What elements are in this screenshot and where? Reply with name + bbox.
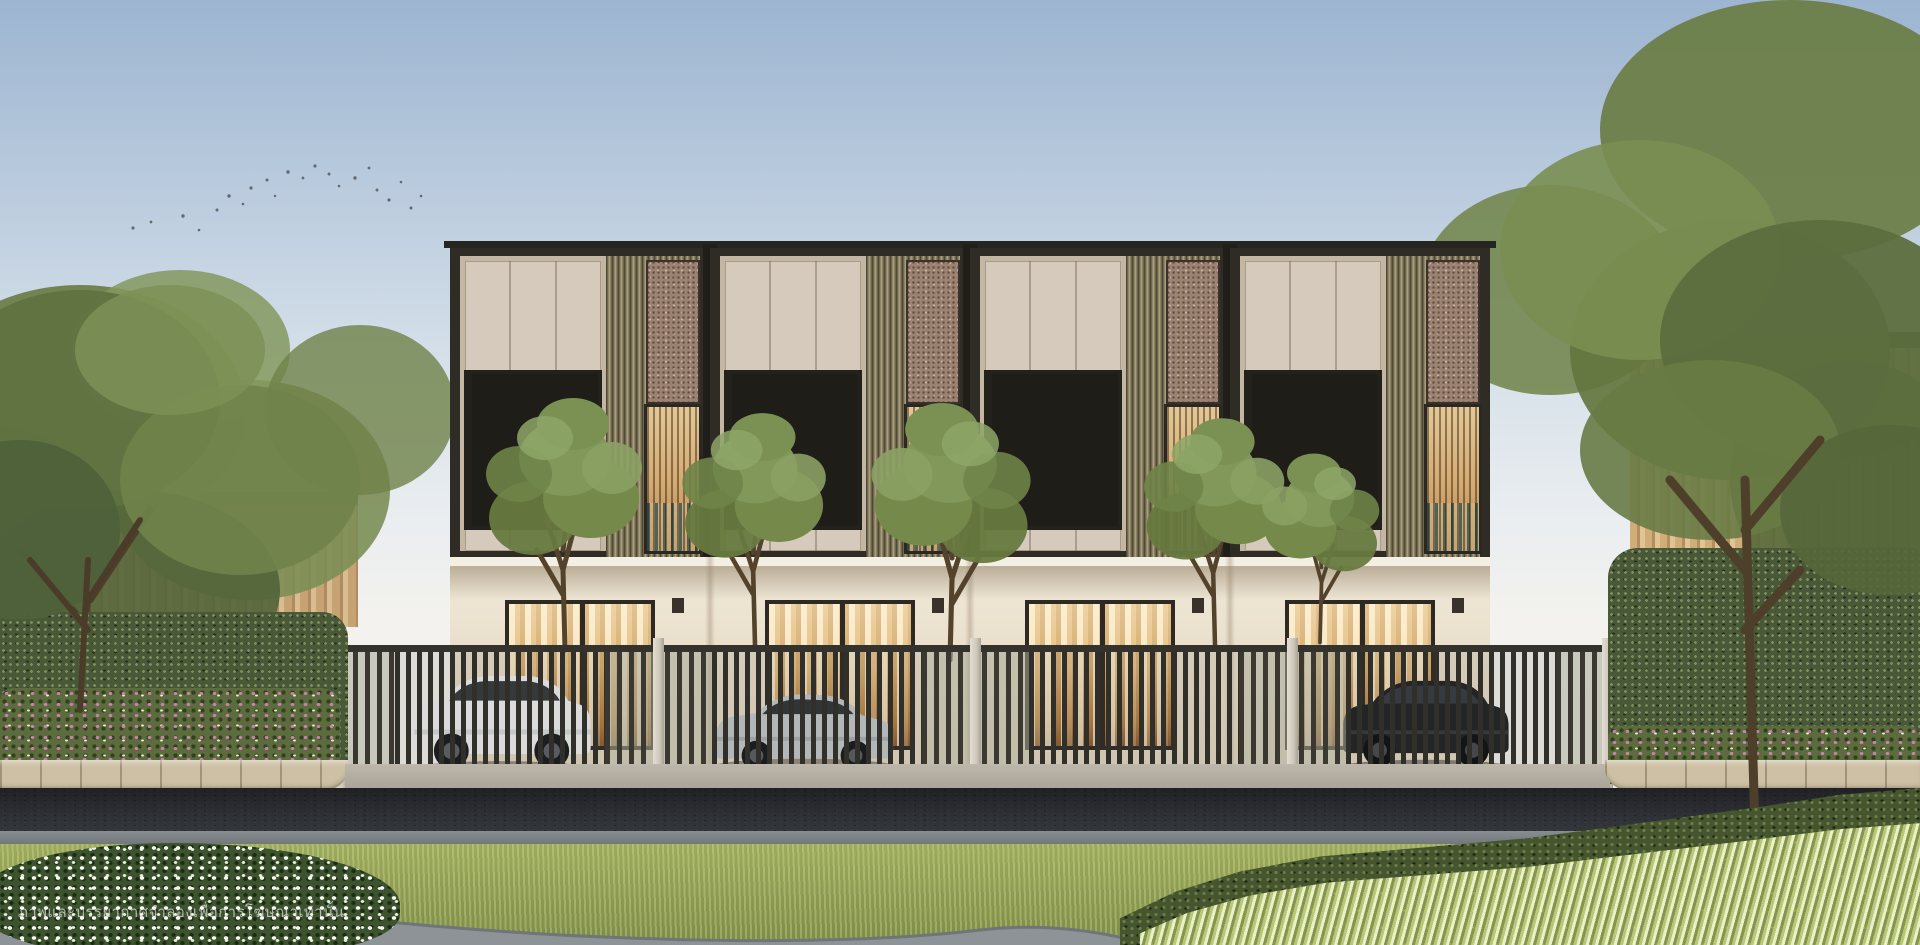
bird-flock — [125, 152, 425, 262]
foreground-tree-right — [1490, 10, 1920, 840]
front-tree-4 — [1215, 420, 1217, 422]
balcony-window-behind-slats — [1424, 404, 1482, 554]
terrazzo-panel — [906, 260, 960, 404]
front-tree-3 — [950, 405, 952, 407]
house-number-plate — [672, 598, 684, 613]
terrazzo-panel — [1166, 260, 1220, 404]
bronze-slat-screen — [1386, 256, 1480, 557]
house-number-plate — [932, 598, 944, 613]
foreground-tree-left — [0, 280, 480, 720]
terrazzo-panel — [646, 260, 700, 404]
house-number-plate — [1192, 598, 1204, 613]
front-tree-2 — [755, 415, 757, 417]
curb-left — [0, 760, 348, 790]
front-tree-1 — [565, 400, 567, 402]
driveway-apron — [345, 764, 1610, 790]
house-number-plate — [1452, 598, 1464, 613]
front-tree-5 — [1320, 455, 1322, 457]
townhouse-exterior-rendering: ภาพและบรรยากาศจำลองเพื่อการโฆษณาเท่านั้น — [0, 0, 1920, 945]
terrazzo-panel — [1426, 260, 1480, 404]
thai-disclaimer-caption: ภาพและบรรยากาศจำลองเพื่อการโฆษณาเท่านั้น — [18, 900, 344, 924]
